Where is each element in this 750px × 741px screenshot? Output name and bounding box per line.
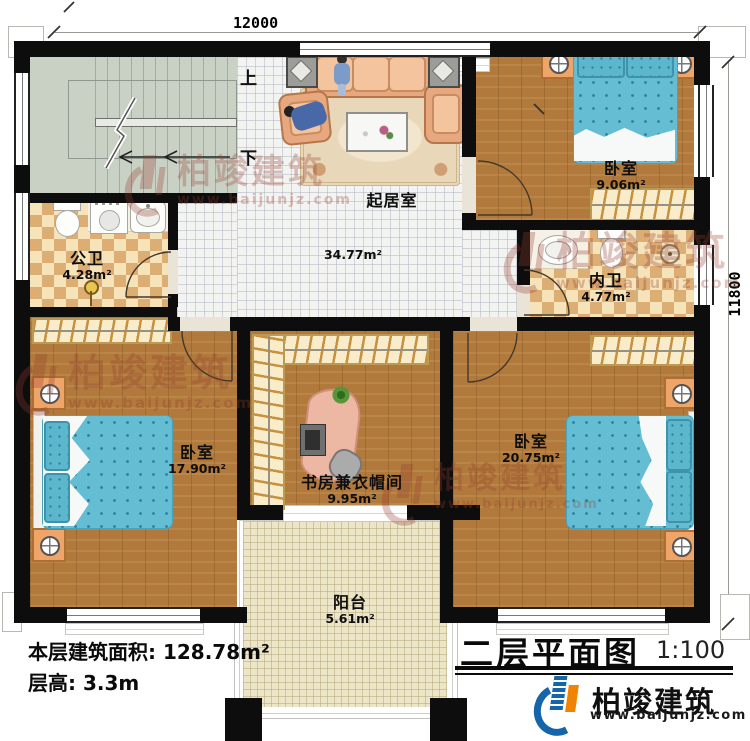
lamp-icon xyxy=(40,536,60,556)
dimension-top: 12000 xyxy=(233,14,278,32)
door-opening xyxy=(517,285,530,317)
plant xyxy=(331,385,351,405)
sink xyxy=(538,235,578,265)
side-table xyxy=(428,56,460,88)
window xyxy=(14,193,30,280)
stair-railing xyxy=(95,118,237,127)
room-label-private-bath: 内卫4.77m² xyxy=(566,272,646,303)
axis-marker xyxy=(720,594,750,640)
wall xyxy=(462,213,476,230)
wall xyxy=(22,41,300,57)
wall xyxy=(14,165,30,193)
door-opening xyxy=(168,250,178,294)
wall xyxy=(517,230,530,285)
wardrobe xyxy=(590,335,698,366)
side-table xyxy=(286,56,318,88)
lamp-icon xyxy=(672,384,692,404)
wall xyxy=(30,193,237,203)
title-underline xyxy=(455,673,733,675)
lamp-icon xyxy=(40,384,60,404)
sink xyxy=(130,201,166,233)
dimension-line-top xyxy=(55,32,700,33)
nightstand xyxy=(664,530,698,562)
room-label-living: 起居室 xyxy=(347,192,437,210)
room-label-bedroom-bl: 卧室17.90m² xyxy=(152,444,242,475)
person-sitting xyxy=(284,98,328,138)
wall xyxy=(237,317,250,520)
lamp-icon xyxy=(549,54,569,74)
window xyxy=(698,245,714,305)
floor-drain xyxy=(84,280,98,306)
stairs-up-label: 上 xyxy=(240,64,257,89)
wall xyxy=(694,41,710,85)
wall xyxy=(168,317,180,331)
coffee-table xyxy=(346,112,408,152)
door-opening xyxy=(180,317,230,331)
room-label-study: 书房兼衣帽间9.95m² xyxy=(277,474,427,505)
window xyxy=(698,85,714,177)
washing-machine xyxy=(90,199,128,234)
plan-scale: 1:100 xyxy=(656,636,725,664)
nightstand xyxy=(32,376,66,410)
balcony-door-track xyxy=(283,505,409,522)
wall xyxy=(453,607,498,623)
wall xyxy=(665,607,710,623)
wall xyxy=(517,317,694,331)
toilet xyxy=(52,200,82,238)
toilet xyxy=(596,228,626,268)
stairs-down-label: 下 xyxy=(240,144,257,169)
wall xyxy=(230,317,470,331)
nightstand xyxy=(32,528,66,562)
wall xyxy=(694,305,710,623)
wardrobe xyxy=(32,318,172,344)
wall xyxy=(168,203,178,250)
nightstand xyxy=(664,377,698,409)
monitor xyxy=(300,424,326,456)
wall xyxy=(200,607,247,623)
window-sill xyxy=(65,623,204,635)
room-label-public-bath: 公卫4.28m² xyxy=(47,250,127,281)
person-sitting xyxy=(333,54,351,96)
wall xyxy=(14,607,67,623)
floor-height-text: 层高: 3.3m xyxy=(28,667,139,696)
wall xyxy=(694,177,710,245)
balcony-pillar xyxy=(430,698,467,741)
wall xyxy=(475,220,694,230)
room-area-living: 34.77m² xyxy=(308,248,398,262)
wall xyxy=(440,331,453,623)
room-label-bedroom-tr: 卧室9.06m² xyxy=(576,160,666,191)
pillow xyxy=(44,421,70,471)
vestibule-floor xyxy=(177,203,237,320)
wardrobe xyxy=(282,334,429,365)
room-label-bedroom-br: 卧室20.75m² xyxy=(486,433,576,464)
floor-plan: 12000 11800 上 下 xyxy=(0,0,750,741)
wardrobe xyxy=(590,188,698,221)
wall xyxy=(490,41,710,57)
wall xyxy=(22,307,177,317)
floor-area-text: 本层建筑面积: 128.78m² xyxy=(28,636,270,665)
window xyxy=(498,607,665,623)
wall xyxy=(168,294,178,307)
wall xyxy=(237,505,283,520)
wall xyxy=(14,280,30,623)
balcony-pillar xyxy=(225,698,262,741)
title-underline xyxy=(455,666,733,670)
pillow xyxy=(44,473,70,523)
window xyxy=(14,73,30,165)
door-opening xyxy=(470,317,517,331)
wall xyxy=(14,41,30,73)
wall xyxy=(462,57,476,157)
door-opening xyxy=(462,157,476,213)
window xyxy=(300,41,490,57)
shower-head xyxy=(660,244,680,264)
brand-logo-icon xyxy=(534,676,588,724)
pillow xyxy=(666,419,692,471)
brand-url: www.baijunjz.com xyxy=(590,708,747,723)
room-label-balcony: 阳台5.61m² xyxy=(305,594,395,625)
dimension-right: 11800 xyxy=(726,264,744,324)
pillow xyxy=(666,471,692,523)
dimension-line-right xyxy=(728,62,729,625)
window xyxy=(67,607,200,623)
lamp-icon xyxy=(672,537,692,557)
